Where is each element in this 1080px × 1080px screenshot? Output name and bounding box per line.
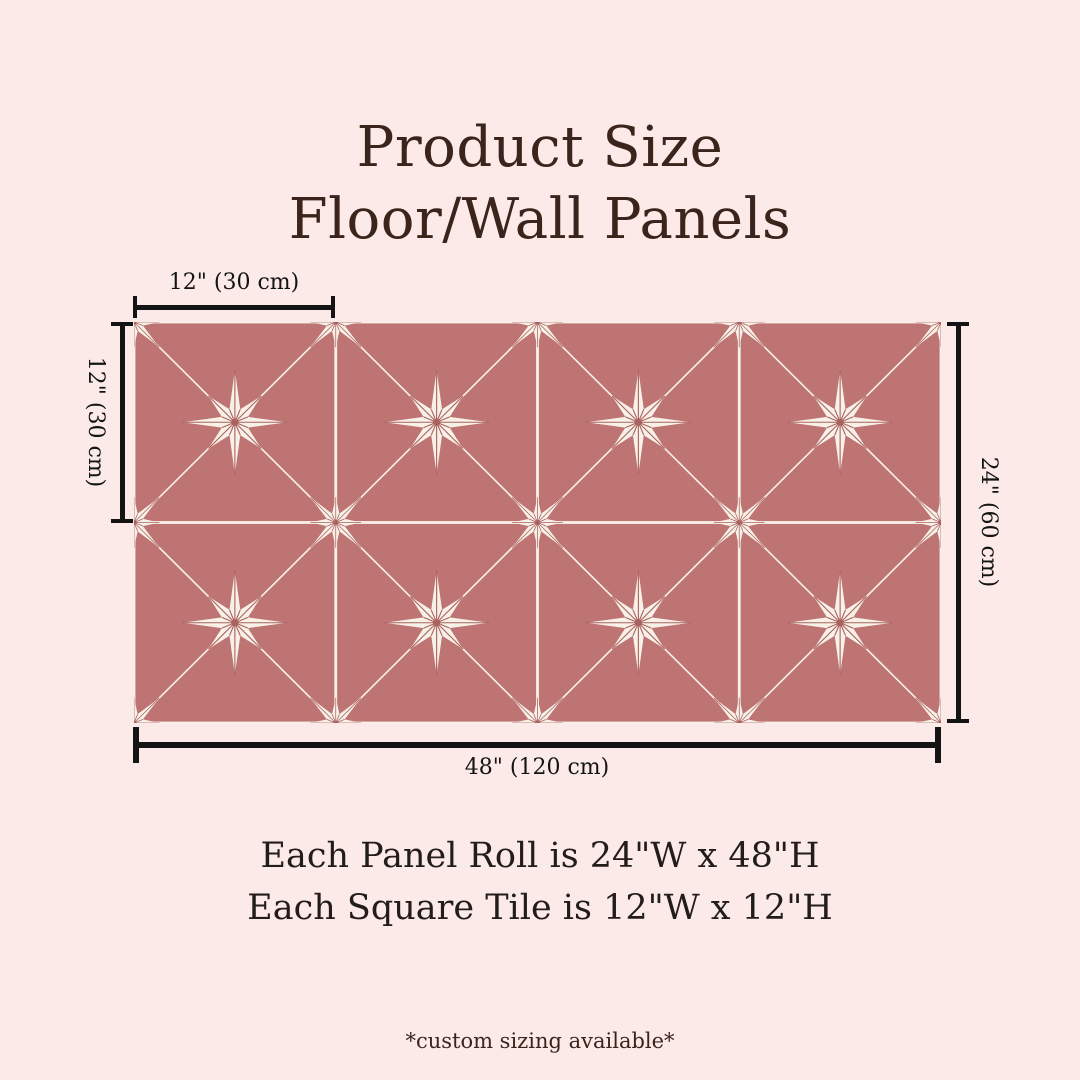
panel-width-label: 48" (120 cm): [133, 755, 941, 780]
panel-roll-spec: Each Panel Roll is 24"W x 48"H: [0, 830, 1080, 882]
dimension-line-tile-height: [111, 322, 133, 523]
dimension-bar: [120, 326, 125, 519]
dimension-bar: [956, 326, 961, 719]
dimension-line-panel-height: [947, 322, 969, 723]
panel-height-label: 24" (60 cm): [975, 437, 1001, 607]
tile-height-label: 12" (30 cm): [82, 352, 108, 492]
dimension-cap: [947, 719, 969, 723]
tile-panel-image: [134, 322, 941, 723]
dimension-bar: [139, 742, 935, 748]
dimension-bar: [137, 305, 331, 310]
page-title: Product Size Floor/Wall Panels: [0, 112, 1080, 256]
custom-sizing-note: *custom sizing available*: [0, 1029, 1080, 1053]
dimension-line-tile-width: [133, 296, 335, 318]
product-size-infographic: Product Size Floor/Wall Panels 12" (30 c…: [0, 0, 1080, 1080]
tile-width-label: 12" (30 cm): [133, 270, 335, 295]
dimension-cap: [111, 519, 133, 523]
size-specs: Each Panel Roll is 24"W x 48"H Each Squa…: [0, 830, 1080, 934]
title-line2: Floor/Wall Panels: [0, 184, 1080, 256]
square-tile-spec: Each Square Tile is 12"W x 12"H: [0, 882, 1080, 934]
title-line1: Product Size: [0, 112, 1080, 184]
dimension-cap: [331, 296, 335, 318]
